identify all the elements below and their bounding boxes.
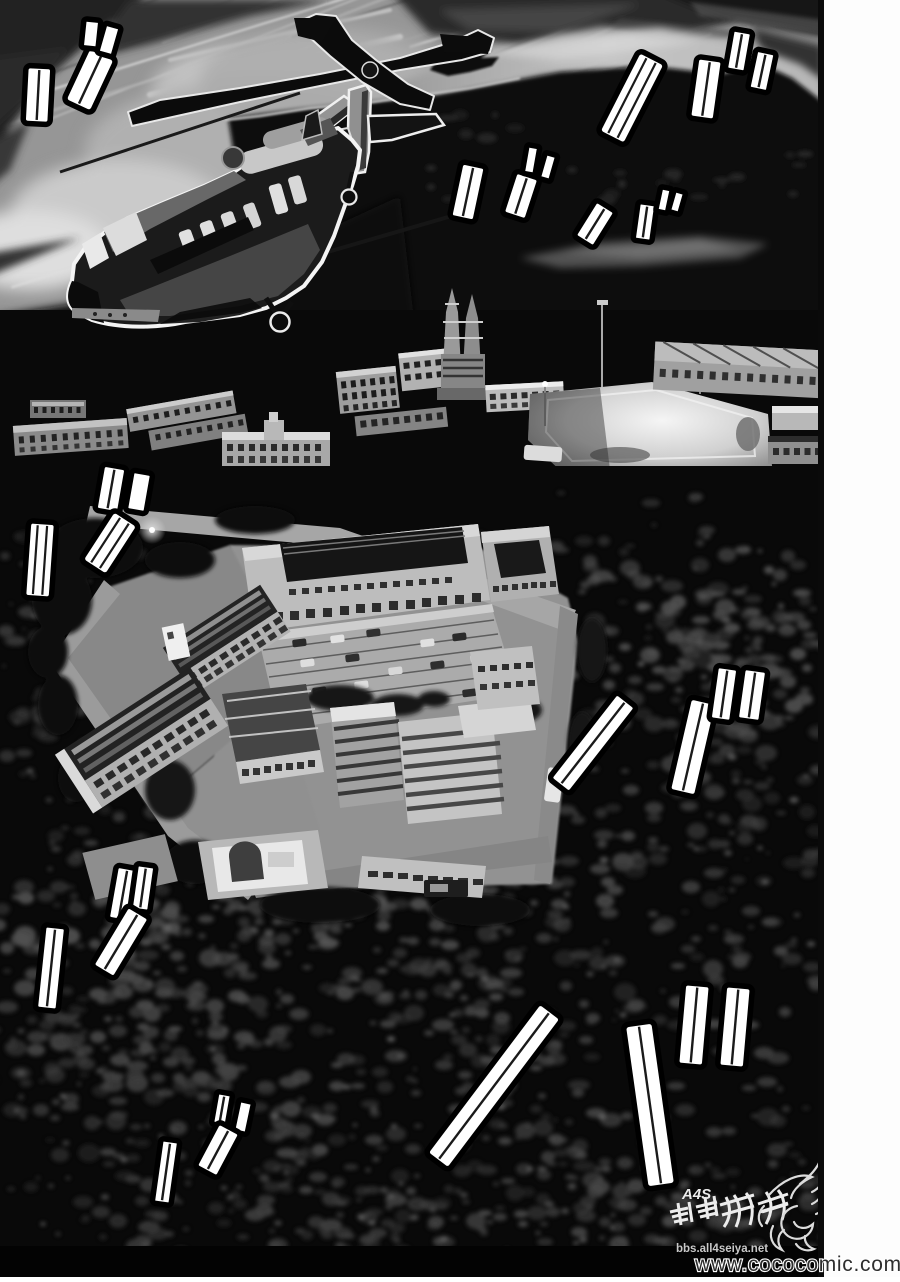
svg-text:www.cococomic.com: www.cococomic.com [694,1253,900,1276]
